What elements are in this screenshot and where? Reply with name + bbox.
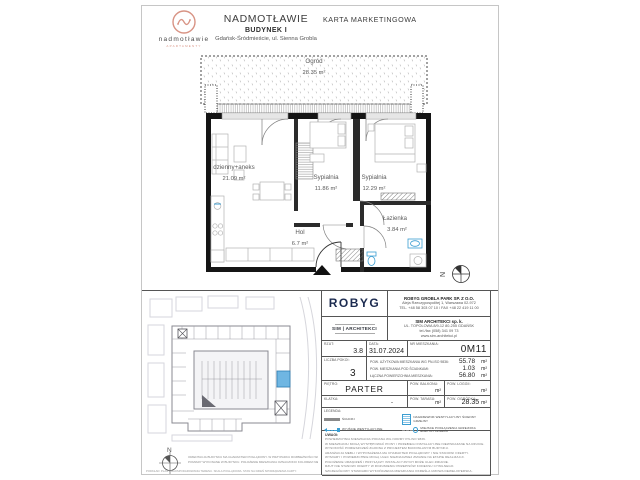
cell-loggia-label: POW. LOGGII: <box>447 382 471 386</box>
cell-taras: POW. TARASU: m² <box>408 396 445 407</box>
area-label: POW. MIESZKANIA POD ŚCIANKAMI: <box>370 367 451 371</box>
note-line: WYMIARY I POWIERZCHNIE MOGĄ ULEC NIEZNAC… <box>325 455 487 459</box>
area-label: POW. UŻYTKOWA MIESZKANIA WG PN-ISO 9836: <box>370 360 451 364</box>
cell-data-label: DATA: <box>369 342 379 346</box>
architect-web: www.sim-architekci.pl <box>421 334 457 339</box>
cell-klatka-label: KLATKA: <box>324 397 338 401</box>
living-name: dzienny+aneks <box>213 164 254 171</box>
cell-loggia-unit: m² <box>481 388 487 394</box>
brand-logo-icon <box>171 9 197 35</box>
area-value: 1.03 <box>451 365 475 372</box>
cell-balkon-unit: m² <box>435 388 441 394</box>
developer-row: ROBYG ROBYG GROBLA PARK SP. Z O.O. Aleja… <box>322 291 490 317</box>
garden-area-value: 28.35 m² <box>303 70 326 76</box>
cell-liczba-pokoi: LICZBA POKOI: 3 <box>322 357 367 380</box>
cell-klatka-value: - <box>391 400 393 406</box>
highlighted-unit <box>277 371 290 387</box>
siteplan-notes: ORIENTACJA BUDYNKU MA CHARAKTER POGLĄDOW… <box>188 455 318 464</box>
bedroom1-name: Sypialnia <box>313 174 339 181</box>
floorplan-compass-icon: N <box>440 266 470 283</box>
divider <box>335 324 375 325</box>
cell-ogrodek-unit: m² <box>481 400 487 406</box>
cell-nr-mieszkania: NR MIESZKANIA: 0M11 <box>408 341 490 356</box>
siteplan-panel: N ORIENTACJA BUDYNKU MA CHARAKTER POGLĄD… <box>142 291 322 475</box>
table-row-4: KLATKA: - POW. TARASU: m² POW. OGRÓDKA: … <box>322 396 490 408</box>
wall-swatch-icon <box>324 418 340 422</box>
header: nadmotławie APARTAMENTY NADMOTŁAWIE BUDY… <box>142 6 498 46</box>
building-name: BUDYNEK I <box>196 27 336 34</box>
document-type: KARTA MARKETINGOWA <box>323 15 417 24</box>
electric-heater-connection-icon <box>402 428 418 432</box>
siteplan-attribution: PODKŁAD: PLAN ZAGOSPODAROWANIA TERENU. S… <box>146 469 318 473</box>
bathroom-name: Łazienka <box>383 216 408 222</box>
architect-logo-text: SIM | ARCHITEKCI <box>332 326 377 331</box>
cell-pokoje-label: LICZBA POKOI: <box>324 358 350 362</box>
cell-nr-value: 0M11 <box>461 344 487 355</box>
cell-pokoje-value: 3 <box>350 368 356 379</box>
marketing-card: nadmotławie APARTAMENTY NADMOTŁAWIE BUDY… <box>141 5 499 475</box>
table-row-1: RZUT: 3.8 DATA: 31.07.2024 NR MIESZKANIA… <box>322 341 490 357</box>
legend-title: LEGENDA: <box>324 409 488 413</box>
page: nadmotławie APARTAMENTY NADMOTŁAWIE BUDY… <box>0 0 640 480</box>
area-row: ŁĄCZNA POWIERZCHNIA MIESZKANIA: 56.80 m² <box>367 372 490 379</box>
cell-loggia: POW. LOGGII: m² <box>445 381 490 394</box>
bedroom2-area: 12.29 m² <box>363 186 386 192</box>
garden-name: Ogród <box>305 58 323 65</box>
developer-logo: ROBYG <box>322 291 388 316</box>
cell-rzut-label: RZUT: <box>324 342 334 346</box>
legend-item-walls: ŚCIANKI <box>324 414 398 425</box>
hall-name: Hol <box>295 229 304 236</box>
pillar-left <box>205 85 217 113</box>
developer-phone: TEL. +48 58 303 07 10 / FAX +48 22 419 1… <box>399 306 479 311</box>
info-panel: ROBYG ROBYG GROBLA PARK SP. Z O.O. Aleja… <box>322 291 491 476</box>
cell-data: DATA: 31.07.2024 <box>367 341 408 356</box>
area-unit: m² <box>475 373 487 379</box>
note-line: SZCZEGÓŁOWY STANDARD WYKOŃCZENIA MIESZKA… <box>325 469 487 473</box>
living-area: 21.09 m² <box>223 176 246 182</box>
bottom-section: N ORIENTACJA BUDYNKU MA CHARAKTER POGLĄD… <box>142 290 498 475</box>
siteplan-drawing <box>142 291 321 443</box>
cell-data-value: 31.07.2024 <box>369 348 404 355</box>
cell-nr-label: NR MIESZKANIA: <box>410 342 439 346</box>
pillar-right <box>411 85 423 113</box>
cell-areas: POW. UŻYTKOWA MIESZKANIA WG PN-ISO 9836:… <box>367 357 490 380</box>
architect-row: SIM | ARCHITEKCI SIM ARCHITEKCI sp. k. U… <box>322 317 490 342</box>
table-row-2: LICZBA POKOI: 3 POW. UŻYTKOWA MIESZKANIA… <box>322 357 490 381</box>
windows <box>222 113 416 119</box>
legend-item-heater: NAGRZEWNIK WENTYLACYJNY ŚCIENNY GRZEJNY <box>402 414 488 425</box>
svg-text:N: N <box>167 447 172 454</box>
project-title: NADMOTŁAWIE <box>196 13 336 25</box>
cell-ogrodek: POW. OGRÓDKA: 28.35m² <box>445 396 490 407</box>
area-value: 56.80 <box>451 372 475 379</box>
cell-ogrodek-value: 28.35 <box>462 399 480 406</box>
legend: LEGENDA: ŚCIANKI NAGRZEWNIK WENTYLACYJNY… <box>322 408 490 431</box>
developer-info: ROBYG GROBLA PARK SP. Z O.O. Aleja Rzecz… <box>388 291 490 316</box>
area-value: 55.78 <box>451 358 475 365</box>
bathroom-area: 3.84 m² <box>387 227 407 233</box>
cell-klatka: KLATKA: - <box>322 396 408 407</box>
hall-area: 6.7 m² <box>292 241 308 247</box>
area-label: ŁĄCZNA POWIERZCHNIA MIESZKANIA: <box>370 374 451 378</box>
cell-pietro-value: PARTER <box>322 384 407 394</box>
siteplan-building <box>172 326 290 431</box>
cell-pietro: PIĘTRO: PARTER <box>322 381 408 394</box>
architect-logo: SIM | ARCHITEKCI <box>322 317 388 341</box>
developer-logo-text: ROBYG <box>329 296 381 310</box>
heater-icon <box>402 414 411 425</box>
cell-balkon: POW. BALKONU: m² <box>408 381 445 394</box>
floorplan: Ogród 28.35 m² <box>142 46 498 290</box>
cell-taras-label: POW. TARASU: <box>410 397 435 401</box>
cell-taras-unit: m² <box>435 400 441 406</box>
area-row: POW. UŻYTKOWA MIESZKANIA WG PN-ISO 9836:… <box>367 358 490 365</box>
vent-exit-icon <box>324 428 340 432</box>
bedroom1-area: 11.86 m² <box>315 186 338 192</box>
siteplan-note: POMIARY WYKONANE W BUDYNKU. POŁOŻENIE MI… <box>188 460 318 465</box>
notes-section: UWAGI: POWIERZCHNIA MIESZKANIA PODANA WG… <box>322 431 490 475</box>
table-row-3: PIĘTRO: PARTER POW. BALKONU: m² POW. LOG… <box>322 381 490 395</box>
siteplan-note: ORIENTACJA BUDYNKU MA CHARAKTER POGLĄDOW… <box>188 455 318 460</box>
title-block: NADMOTŁAWIE BUDYNEK I Gdańsk-Śródmieście… <box>196 13 336 42</box>
project-address: Gdańsk-Śródmieście, ul. Sienna Grobla <box>196 36 336 42</box>
legend-item-vent: WYJŚCIE WENTYLACYJNE <box>324 427 398 434</box>
legend-item-electric: MIEJSCE PODŁĄCZENIA GRZEJNIKA ELEKTRYCZN… <box>402 427 488 434</box>
siteplan-footer: N ORIENTACJA BUDYNKU MA CHARAKTER POGLĄD… <box>142 443 321 475</box>
cell-rzut: RZUT: 3.8 <box>322 341 367 356</box>
cell-rzut-value: 3.8 <box>353 348 363 355</box>
area-row: POW. MIESZKANIA POD ŚCIANKAMI: 1.03 m² <box>367 365 490 372</box>
svg-text:N: N <box>440 272 447 277</box>
garden-area: Ogród 28.35 m² <box>201 56 427 104</box>
bedroom2-name: Sypialnia <box>361 174 387 181</box>
divider <box>335 333 375 334</box>
architect-info: SIM ARCHITEKCI sp. k. UL. TOPOLOWA 8/9-1… <box>388 317 490 341</box>
